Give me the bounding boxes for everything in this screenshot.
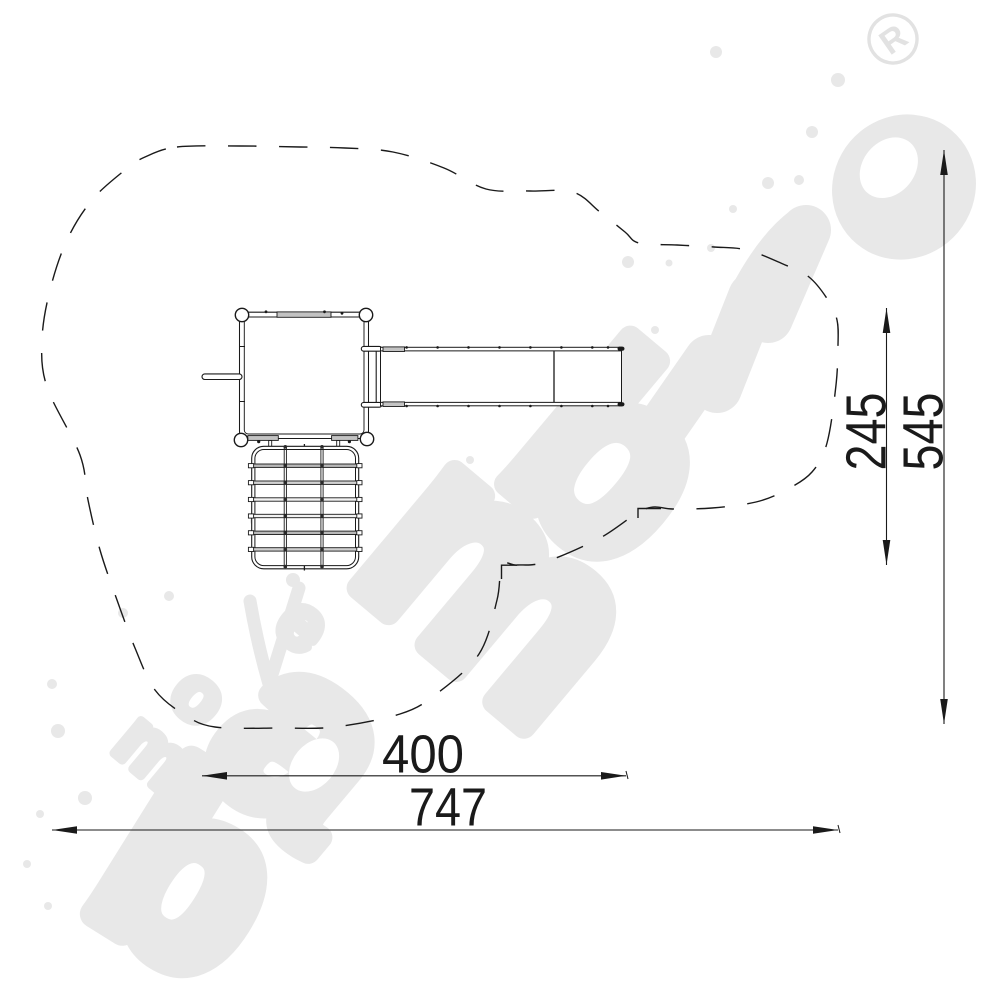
svg-text:400: 400 [382, 725, 464, 785]
svg-text:545: 545 [892, 393, 956, 471]
svg-text:747: 747 [409, 778, 487, 838]
svg-text:245: 245 [835, 393, 899, 471]
